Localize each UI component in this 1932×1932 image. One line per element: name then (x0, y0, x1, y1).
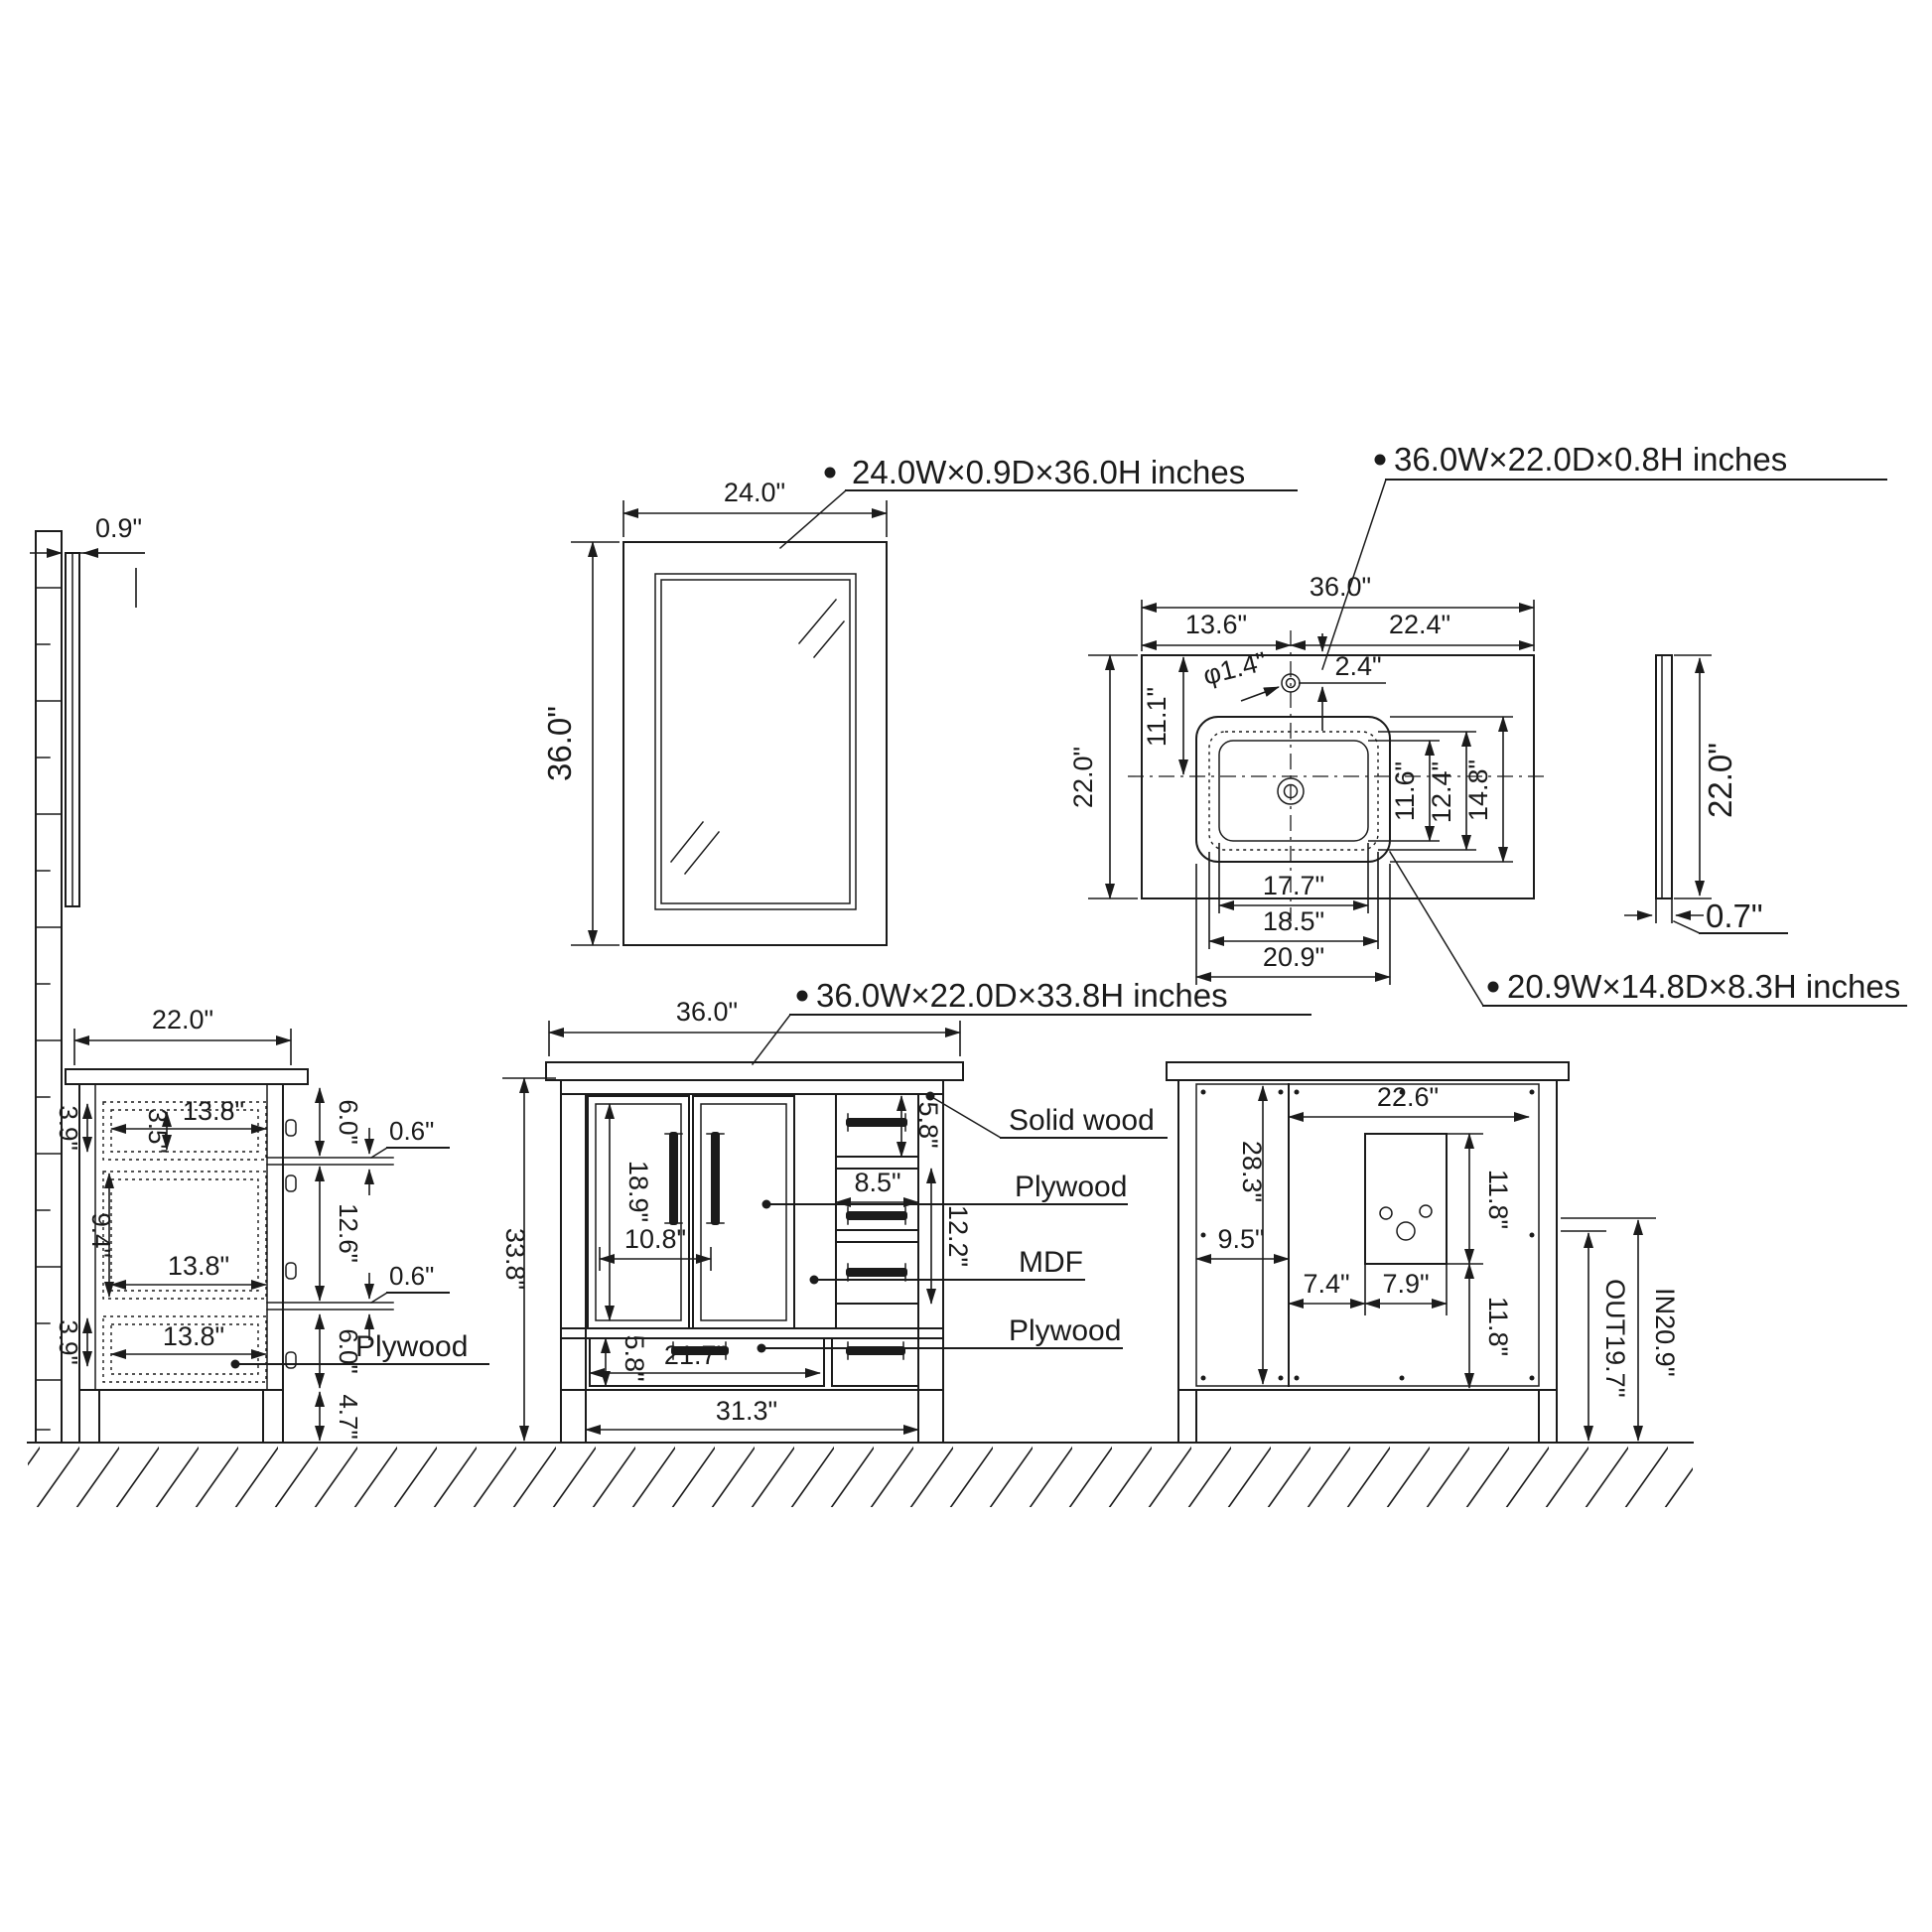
cabinet-back-view: 28.3" 22.6" 9.5" 11.8" 11.8" 7.4" 7.9" O… (1167, 1062, 1680, 1443)
dim-top-front-depth: 11.1" (1142, 687, 1172, 747)
dim-hole-offset: 2.4" (1334, 651, 1381, 681)
dim-mid-gap: 12.6" (334, 1203, 363, 1263)
callout-countertop-text: 36.0W×22.0D×0.8H inches (1394, 441, 1787, 478)
dim-rail1: 0.6" (389, 1116, 434, 1146)
dim-mirror-height: 36.0" (541, 706, 578, 781)
dim-top-gap: 6.0" (334, 1099, 363, 1144)
dim-back-side: 9.5" (1217, 1224, 1264, 1254)
dim-rail2: 0.6" (389, 1261, 434, 1291)
dim-cut-top: 11.8" (1483, 1170, 1513, 1229)
dim-top-left-split: 13.6" (1185, 610, 1247, 639)
dim-d3-front: 3.9" (54, 1319, 83, 1364)
plumbing-cutout (1365, 1134, 1447, 1264)
callout-sink-text: 20.9W×14.8D×8.3H inches (1507, 968, 1900, 1005)
dim-bowl-d1: 11.6" (1390, 761, 1420, 821)
dim-hole-diameter: φ1.4" (1200, 646, 1270, 691)
dim-bowl-d3: 14.8" (1463, 759, 1493, 821)
door-handles (665, 1132, 724, 1225)
bullet-icon (1488, 982, 1499, 993)
callout-mirror-text: 24.0W×0.9D×36.0H inches (852, 454, 1245, 490)
dim-top-width: 36.0" (1310, 572, 1371, 602)
bullet-icon (825, 468, 836, 479)
mirror-side-view: 0.9" (30, 513, 145, 906)
dim-mirror-thickness: 0.9" (95, 513, 142, 543)
dim-base-width: 31.3" (716, 1396, 777, 1426)
drawer-handles (846, 1114, 907, 1281)
wall (36, 531, 62, 1443)
label-solid-wood: Solid wood (1009, 1104, 1155, 1137)
dim-drawer-stack: 12.2" (943, 1205, 973, 1267)
dim-d2-width: 13.8" (168, 1251, 229, 1281)
cabinet-front-view: 36.0" 33.8" 18.9" 10.8" 5.8" 8.5" 12.2" … (500, 997, 973, 1443)
vanity-dimension-drawing: 0.9" 24.0" 36.0" 24.0W×0.9D×36.0H inches (0, 0, 1932, 1932)
callout-vanity-text: 36.0W×22.0D×33.8H inches (816, 977, 1228, 1014)
dim-front-width: 36.0" (676, 997, 738, 1027)
countertop-side-view: 22.0" 0.7" (1624, 655, 1787, 934)
dim-cut-left: 7.4" (1303, 1269, 1349, 1299)
bullet-icon (1375, 455, 1386, 466)
mirror-reflection-marks (671, 600, 844, 874)
countertop-top-view: 36.0" 13.6" 22.4" 22.0" 11.1" φ1.4" 2.4" (1068, 572, 1549, 985)
dim-d2-front: 9.4" (86, 1212, 116, 1257)
callout-mirror: 24.0W×0.9D×36.0H inches (780, 454, 1297, 548)
label-side-material: Plywood (355, 1330, 468, 1363)
dim-top-depth: 22.0" (1068, 747, 1098, 808)
ground-hatch (28, 1445, 1693, 1508)
bullet-icon (797, 991, 808, 1002)
sink-top-view (1196, 717, 1390, 862)
dim-top-right-split: 22.4" (1389, 610, 1450, 639)
dim-door-width: 10.8" (624, 1224, 686, 1254)
dim-bowl-d2: 12.4" (1427, 761, 1456, 823)
dim-cut-bottom: 11.8" (1483, 1297, 1513, 1356)
dim-back-height: 28.3" (1237, 1141, 1267, 1202)
callout-sink: 20.9W×14.8D×8.3H inches (1390, 852, 1906, 1006)
dim-side-thickness: 0.7" (1706, 897, 1763, 934)
dim-mirror-width: 24.0" (724, 478, 785, 507)
dim-cut-width: 7.9" (1382, 1269, 1429, 1299)
dim-bowl-w1: 17.7" (1263, 871, 1324, 900)
dim-back-width: 22.6" (1377, 1082, 1439, 1112)
ground (28, 1443, 1693, 1508)
dim-leg: 4.7" (334, 1394, 363, 1439)
label-plywood-2: Plywood (1009, 1314, 1121, 1347)
mirror-front-view: 24.0" 36.0" (541, 478, 887, 945)
dim-d1-box: 3.5" (143, 1108, 173, 1153)
dim-side-cab-depth: 22.0" (152, 1005, 213, 1035)
dim-bowl-w2: 18.5" (1263, 906, 1324, 936)
label-plywood-1: Plywood (1015, 1171, 1127, 1203)
dim-in-height: IN20.9'' (1650, 1288, 1680, 1377)
cabinet-side-view: 22.0" 3.9" 3.5" 13.8" 6.0" 0.6" 9.4" 13.… (54, 1005, 488, 1443)
dim-top-drawer: 5.8" (913, 1101, 943, 1148)
dim-d3-width: 13.8" (163, 1321, 224, 1351)
dim-bottom-drawer: 5.8" (620, 1334, 649, 1381)
dim-door-height: 18.9" (623, 1161, 653, 1222)
drawing-canvas: 0.9" 24.0" 36.0" 24.0W×0.9D×36.0H inches (0, 0, 1932, 1932)
callout-vanity: 36.0W×22.0D×33.8H inches (753, 977, 1311, 1064)
dim-front-height: 33.8" (500, 1228, 530, 1290)
dim-out-height: OUT19.7'' (1600, 1279, 1630, 1398)
dim-bowl-w3: 20.9" (1263, 942, 1324, 972)
dim-d1-front: 3.9" (54, 1105, 83, 1150)
dim-drawer-width: 8.5" (854, 1168, 900, 1197)
label-mdf: MDF (1019, 1246, 1083, 1279)
dim-side-depth: 22.0" (1702, 743, 1738, 818)
dim-d1-width: 13.8" (183, 1096, 244, 1126)
dim-bottom-width: 21.7" (664, 1340, 726, 1370)
